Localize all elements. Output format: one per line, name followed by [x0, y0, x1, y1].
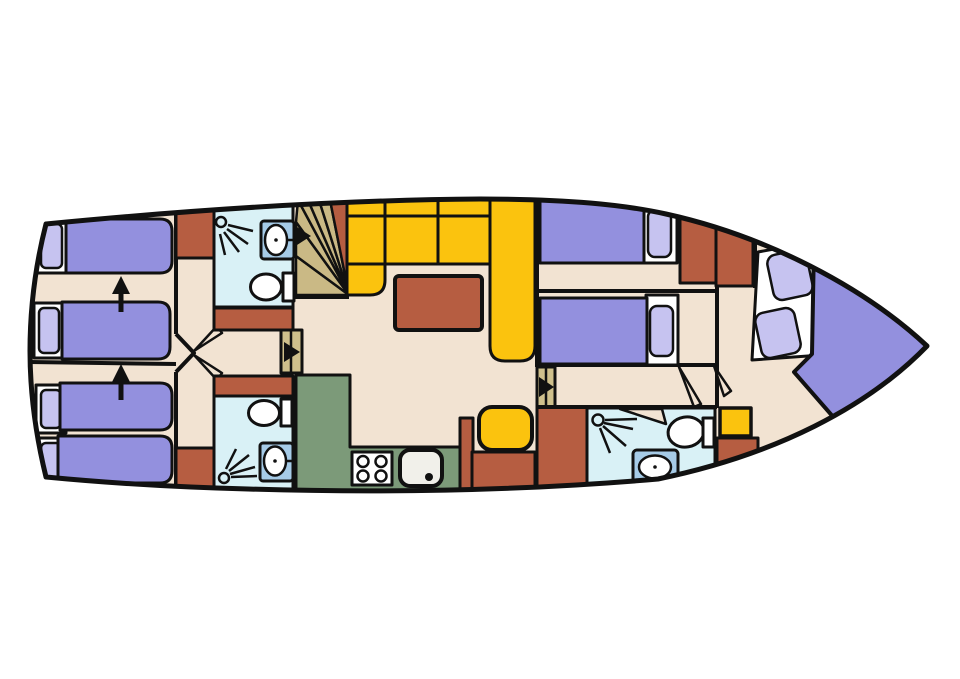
yacht-floor-plan [0, 0, 960, 679]
stove-burner-icon [376, 471, 387, 482]
galley-sink [400, 450, 442, 486]
salon-table [395, 276, 482, 330]
sink-drain-icon [653, 465, 657, 469]
toilet-bowl [249, 401, 280, 426]
sofa-seat [385, 216, 438, 264]
shower-head-icon [219, 473, 229, 483]
wardrobe-cabinet [537, 407, 587, 492]
toilet-tank [283, 273, 294, 301]
stove-burner-icon [358, 456, 369, 467]
sofa-side-seat [490, 196, 535, 361]
wardrobe-cabinet [176, 448, 214, 488]
bed-pillow [650, 306, 673, 356]
bed-mattress [60, 383, 172, 430]
stove-burner-icon [358, 471, 369, 482]
wardrobe-cabinet [214, 308, 293, 330]
sofa-seat [438, 216, 490, 264]
bed-mattress [62, 302, 170, 359]
wall-left-cabin-divider [30, 362, 176, 364]
bed-mattress [540, 298, 647, 364]
sink-drain-icon [273, 459, 277, 463]
toilet-bowl [251, 274, 282, 300]
bed-pillow [754, 306, 803, 359]
bed-pillow [41, 390, 61, 428]
sink-drain-icon [274, 238, 278, 242]
bed-pillow [648, 210, 671, 257]
stove-burner-icon [376, 456, 387, 467]
toilet-tank [281, 399, 292, 426]
sofa-corner-seat [347, 264, 385, 295]
bed-mattress [66, 219, 172, 273]
salon-stool [479, 407, 532, 450]
bed-pillow [39, 308, 59, 353]
wardrobe-cabinet [214, 376, 293, 396]
bed-mattress [58, 436, 172, 483]
galley-sink-drain-icon [425, 473, 433, 481]
toilet-tank [703, 418, 714, 447]
bow-stool [720, 408, 751, 436]
shower-head-icon [216, 217, 226, 227]
shower-head-icon [593, 415, 604, 426]
floorplan-svg [0, 0, 960, 679]
sofa-seat [347, 216, 385, 264]
